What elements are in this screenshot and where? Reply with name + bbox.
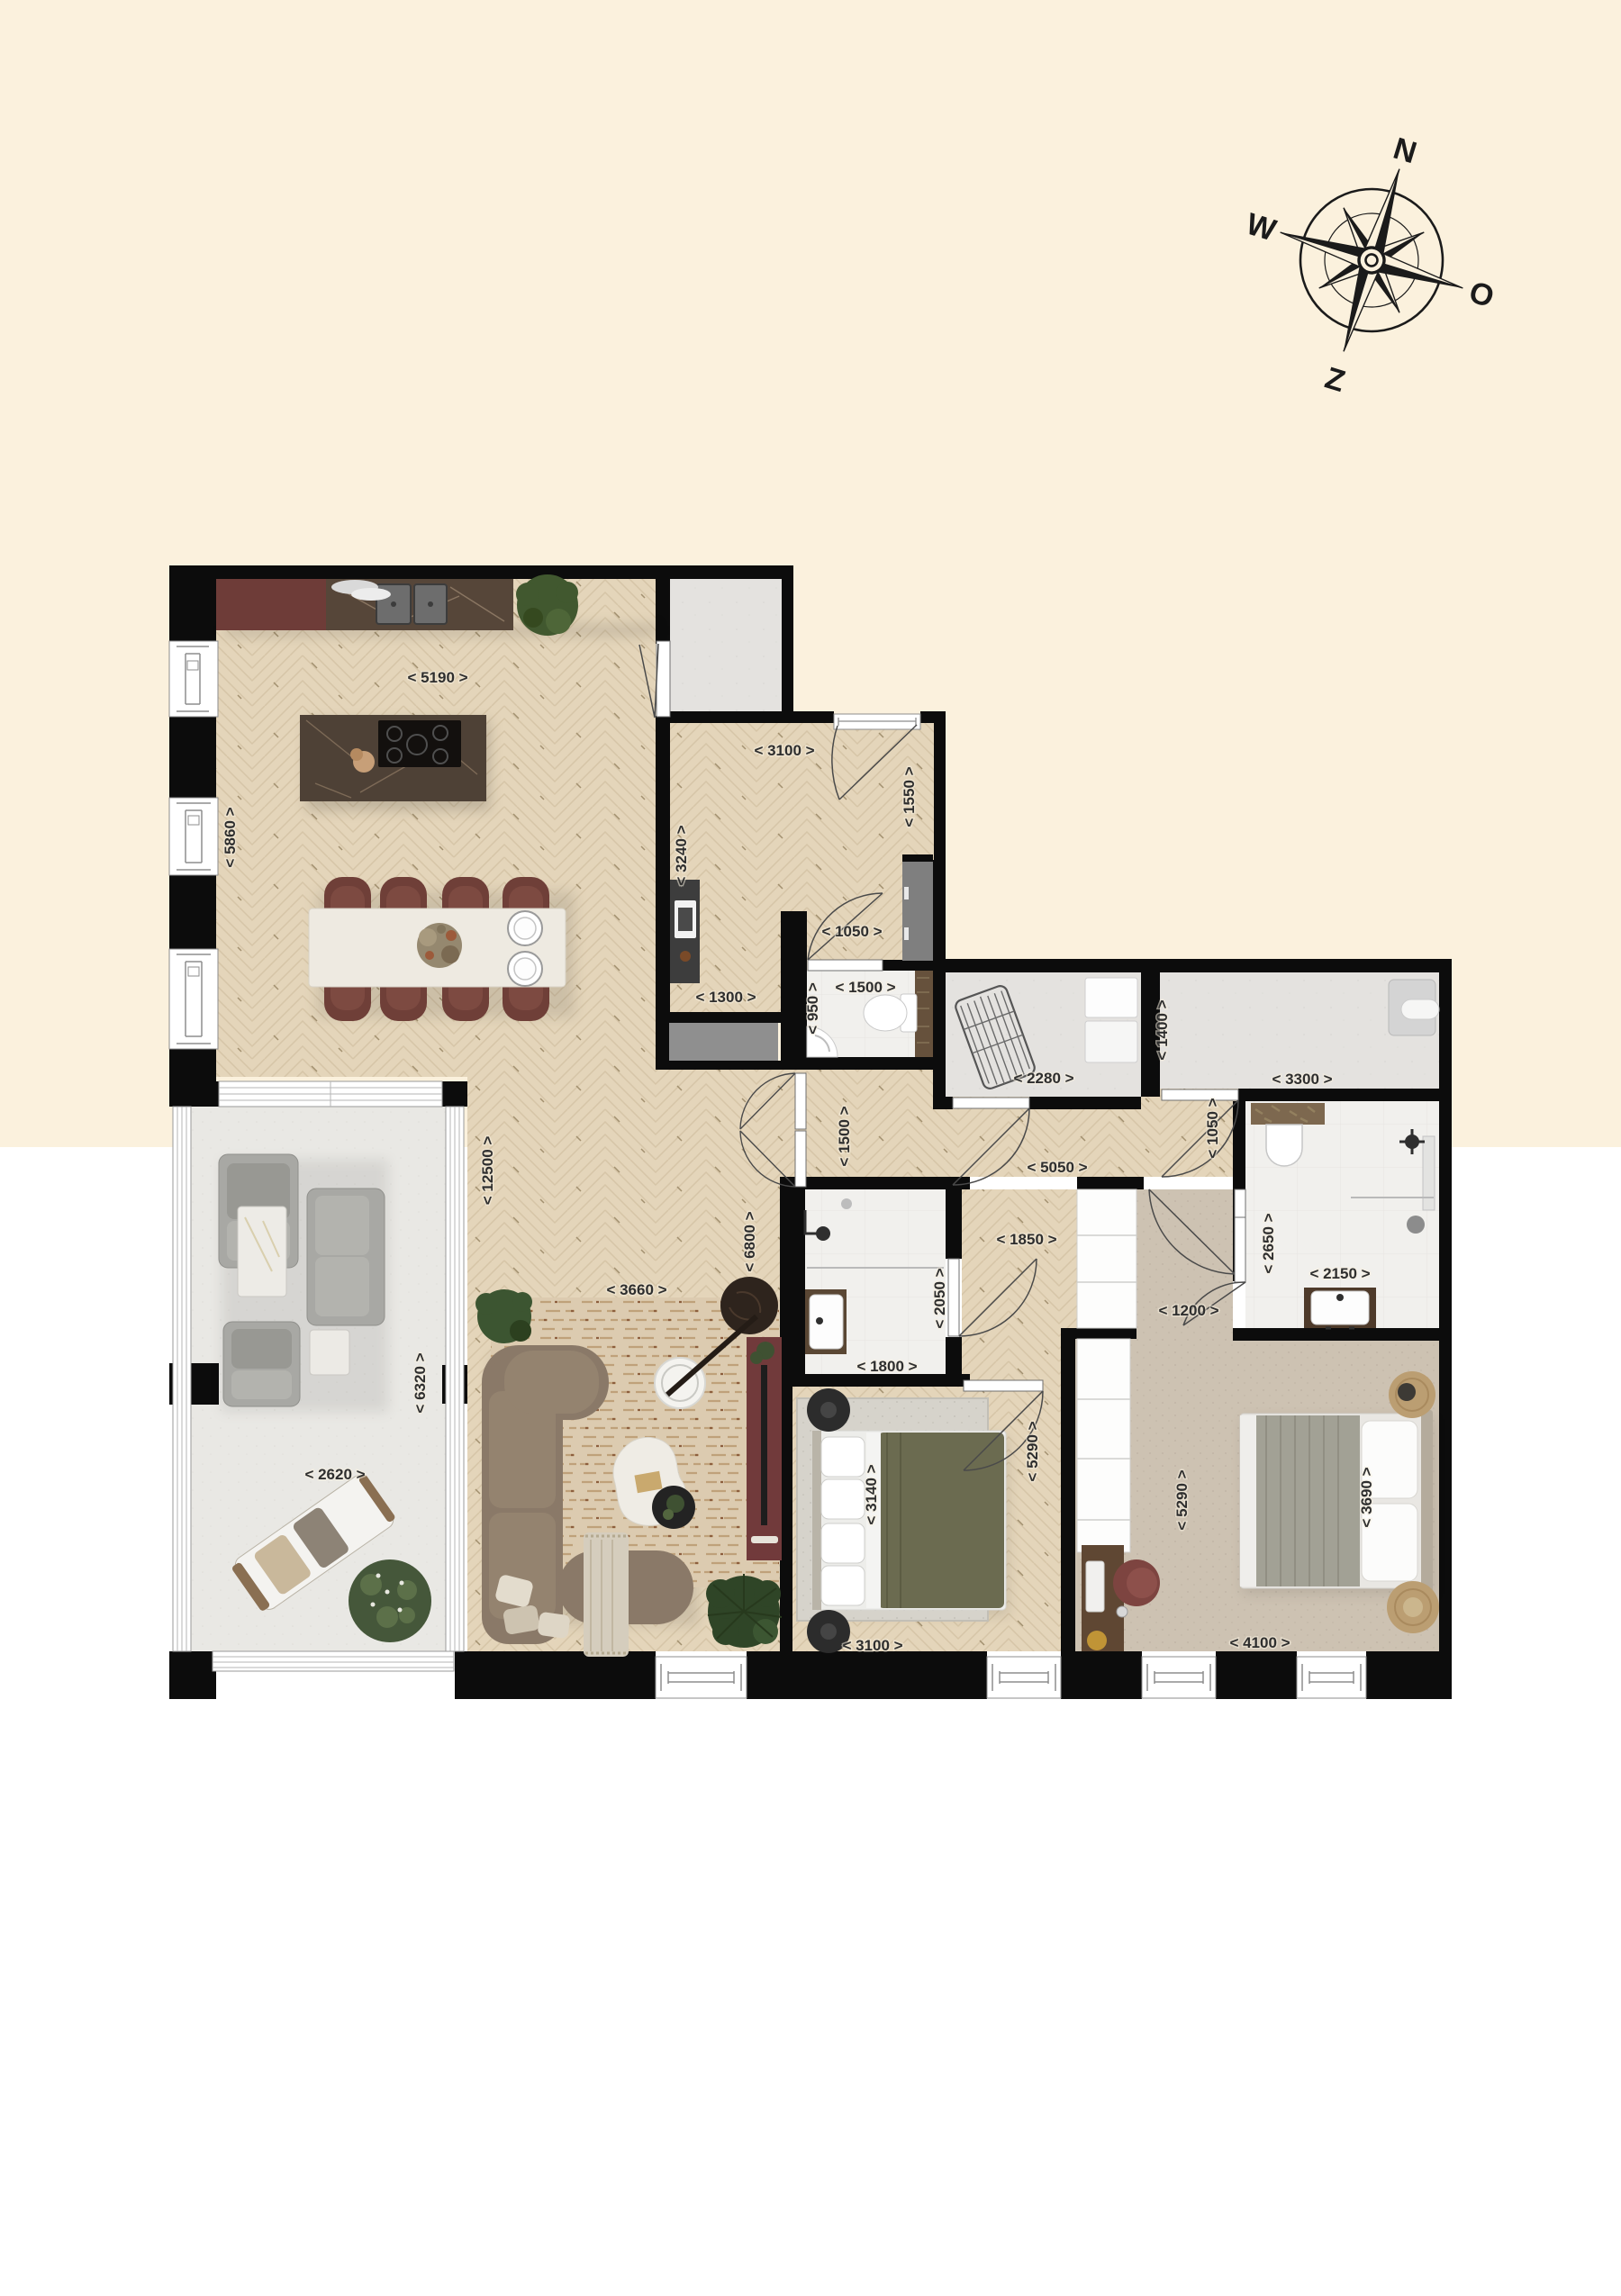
svg-text:< 1800 >: < 1800 > — [856, 1358, 917, 1375]
svg-text:< 6320 >: < 6320 > — [412, 1352, 429, 1413]
svg-text:< 3140 >: < 3140 > — [863, 1464, 880, 1524]
svg-text:< 4100 >: < 4100 > — [1229, 1634, 1290, 1651]
svg-text:< 5290 >: < 5290 > — [1173, 1469, 1191, 1530]
svg-text:< 3100 >: < 3100 > — [754, 742, 814, 759]
svg-text:< 5190 >: < 5190 > — [407, 669, 467, 686]
svg-text:< 3690 >: < 3690 > — [1358, 1467, 1375, 1527]
svg-text:< 950 >: < 950 > — [804, 982, 821, 1035]
svg-text:< 5860 >: < 5860 > — [222, 807, 239, 867]
svg-text:< 3240 >: < 3240 > — [673, 825, 690, 885]
svg-text:< 3100 >: < 3100 > — [842, 1637, 902, 1654]
svg-text:< 12500 >: < 12500 > — [479, 1136, 496, 1206]
svg-text:< 2620 >: < 2620 > — [304, 1466, 365, 1483]
svg-text:< 5290 >: < 5290 > — [1024, 1421, 1041, 1481]
svg-text:< 2650 >: < 2650 > — [1260, 1213, 1277, 1273]
svg-text:< 1300 >: < 1300 > — [695, 989, 756, 1006]
svg-text:< 2280 >: < 2280 > — [1013, 1070, 1073, 1087]
svg-text:< 6800 >: < 6800 > — [741, 1211, 758, 1271]
svg-text:< 3660 >: < 3660 > — [606, 1281, 666, 1298]
svg-text:< 2150 >: < 2150 > — [1309, 1265, 1370, 1282]
svg-text:< 5050 >: < 5050 > — [1027, 1159, 1087, 1176]
svg-text:< 1500 >: < 1500 > — [836, 1106, 853, 1166]
svg-text:< 1500 >: < 1500 > — [835, 979, 895, 996]
svg-text:< 2050 >: < 2050 > — [931, 1268, 948, 1328]
svg-text:< 1550 >: < 1550 > — [901, 766, 918, 827]
svg-text:< 1050 >: < 1050 > — [1204, 1098, 1221, 1158]
svg-text:< 3300 >: < 3300 > — [1272, 1071, 1332, 1088]
svg-text:< 1400 >: < 1400 > — [1154, 999, 1171, 1060]
svg-text:< 1200 >: < 1200 > — [1158, 1302, 1218, 1319]
svg-text:< 1850 >: < 1850 > — [996, 1231, 1056, 1248]
svg-text:< 1050 >: < 1050 > — [821, 923, 882, 940]
